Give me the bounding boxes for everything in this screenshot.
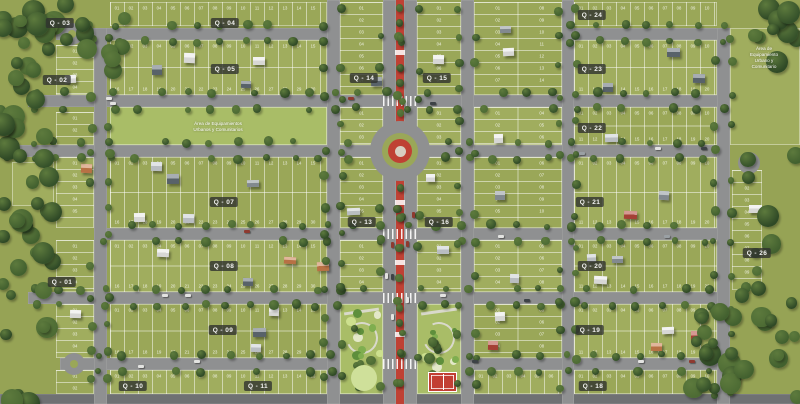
house [433,55,445,64]
lot-number: 05 [635,6,640,11]
lot-number: 18 [143,87,148,92]
lot-number: 01 [359,161,364,166]
lot-number: 02 [437,123,442,128]
lot-number: 06 [649,111,654,116]
lot-number: 15 [311,244,316,249]
tree [424,89,431,96]
tree [570,297,579,306]
lot-number: 05 [171,308,176,313]
lot-number: 08 [213,374,218,379]
lot-number: 07 [663,6,668,11]
block-label: Q - 05 [211,64,239,74]
tree [396,4,403,11]
tree [415,96,422,103]
lot-number: 03 [143,161,148,166]
tree [264,136,273,145]
tree [77,138,85,146]
lot-number: 07 [663,161,668,166]
tree [0,230,10,243]
tree [691,336,702,347]
tree [77,39,97,59]
tree [95,368,101,374]
lot-number: 04 [621,374,626,379]
house [167,174,179,184]
tree [279,236,288,245]
tree [453,330,461,338]
block-label: Q - 10 [119,381,147,391]
tree [42,42,56,56]
house [603,83,613,92]
tree [618,138,625,145]
lot-number: 02 [73,386,78,391]
tree [253,104,261,112]
lot-number: 06 [185,244,190,249]
tree [633,367,642,376]
tree [590,155,597,162]
house [247,180,259,188]
tree [376,382,385,391]
court-centerline [443,374,444,390]
lot-number: 23 [213,220,218,225]
lot-number: 10 [241,6,246,11]
lot-number: 25 [241,350,246,355]
house [667,48,680,57]
lot-number: 12 [269,161,274,166]
house [253,327,266,336]
tree [88,322,97,331]
tree [443,286,449,292]
block-label: Q - 02 [43,75,71,85]
car [406,241,409,247]
lot-number: 09 [539,18,544,23]
tree [18,37,30,49]
car [524,299,530,302]
house [605,134,618,143]
tree [789,331,800,342]
lot-number: 15 [311,6,316,11]
lot-number: 02 [593,244,598,249]
lot-number: 01 [495,244,500,249]
lot-number: 06 [185,161,190,166]
tree [567,222,577,232]
lot-number: 11 [579,350,583,355]
house [81,163,92,173]
tree [454,240,462,248]
lot-number: 08 [677,6,682,11]
tree [536,352,544,360]
lot-number: 14 [621,284,626,289]
lot-number: 03 [359,135,364,140]
car [385,273,388,279]
tree [787,147,800,164]
tree [428,337,438,347]
tree [38,321,50,333]
lot-number: 27 [269,220,274,225]
lot-number: 15 [311,44,316,49]
tree [471,329,480,338]
tree [573,245,579,251]
tree [87,295,94,302]
lot-number: 08 [677,244,682,249]
lot-number: 04 [359,197,364,202]
block-label: Q - 20 [578,261,606,271]
lot-number: 02 [593,44,598,49]
tree [698,140,704,146]
lot-number: 24 [227,87,232,92]
lot-number: 06 [539,256,544,261]
tree [13,149,27,163]
lot-number: 09 [227,244,232,249]
car [162,294,168,297]
tree [338,149,345,156]
tree [572,270,578,276]
tree [170,351,179,360]
lot-number: 20 [171,87,176,92]
tree [454,183,460,189]
tree [130,303,136,309]
tree [457,221,466,230]
tree [10,259,27,276]
lot-number: 04 [73,197,78,202]
lot-number: 11 [579,87,583,92]
tree [337,4,346,13]
house [70,309,81,317]
tree [338,372,346,380]
lot-number: 17 [129,350,134,355]
tree [175,223,182,230]
lot-number: 05 [171,244,176,249]
car [106,97,112,100]
lot-number: 12 [539,54,544,59]
lot-number: 05 [635,244,640,249]
house [151,162,162,171]
lot-number: 12 [269,244,274,249]
tree [232,105,241,114]
lot-number: 03 [143,244,148,249]
lot-number: 14 [297,6,302,11]
tree [699,155,707,163]
lot-number: 01 [437,161,442,166]
tree [26,62,42,78]
tree [414,354,422,362]
lot-number: 11 [579,220,583,225]
lot-number: 20 [705,137,710,142]
house [693,74,705,84]
tree [202,222,210,230]
median-crossing [395,50,405,55]
tree [104,51,121,68]
lot-number: 08 [677,308,682,313]
tree [322,147,330,155]
tree [86,178,94,186]
lot-number: 08 [539,6,544,11]
tree [193,39,201,47]
tree [299,223,306,230]
car [391,242,394,248]
lot-number: 10 [241,374,246,379]
lot-number: 08 [539,185,544,190]
tree [721,22,728,29]
block-label: Q - 26 [743,248,771,258]
tree [441,152,450,161]
tree [740,152,756,168]
lot-number: 10 [241,244,246,249]
tree [396,304,403,311]
car [185,294,191,297]
tree [595,222,604,231]
lot-number: 06 [185,44,190,49]
tree [182,303,189,310]
tree [554,7,563,16]
tree [397,109,404,116]
lot-number: 09 [745,270,750,275]
tree [727,239,734,246]
tree [169,38,177,46]
lot-number: 14 [621,350,626,355]
lot-number: 21 [185,350,190,355]
tree [233,155,242,164]
lot-number: 03 [607,44,612,49]
tree [321,314,329,322]
lot-number: 09 [227,374,232,379]
tree [710,122,718,130]
lot-number: 23 [213,284,218,289]
lot-number: 05 [359,54,364,59]
house [488,341,498,350]
house [251,344,261,352]
house [651,343,662,351]
tree [666,38,673,45]
lot-number: 05 [635,44,640,49]
lot-number: 17 [663,220,668,225]
lot-number: 01 [579,44,584,49]
tree [397,64,404,71]
tree [556,120,563,127]
lot-number: 26 [255,220,260,225]
lot-number: 05 [635,111,640,116]
car [412,212,415,218]
house [152,65,162,75]
tree [514,285,521,292]
lot-number: 02 [73,320,78,325]
tree [643,90,650,97]
lot-number: 29 [297,350,302,355]
tree [643,222,650,229]
tree [305,88,314,97]
lot-number: 12 [269,6,274,11]
lot-number: 09 [227,6,232,11]
lot-number: 09 [539,197,544,202]
lot-number: 05 [539,123,544,128]
tree [397,184,404,191]
lot-number: 05 [635,161,640,166]
house [624,211,637,219]
lot-number: 10 [241,44,246,49]
lot-number: 03 [437,185,442,190]
tree [103,285,109,291]
lot-number: 19 [157,220,162,225]
lot-number: 03 [437,135,442,140]
tree [568,138,575,145]
masterplan-map: 0102030401020102030405010203040102030401… [0,0,800,404]
tree [395,244,402,251]
lot-number: 01 [115,244,120,249]
car [110,102,116,105]
tree [320,373,328,381]
lot-number: 02 [593,111,598,116]
tree [726,35,734,43]
tree [86,92,95,101]
tree [175,237,182,244]
tree [382,87,392,97]
car [498,235,504,238]
tree [111,105,120,114]
lot-number: 04 [437,42,442,47]
house [594,276,607,285]
area-label: Área de Equipamiento Urbano y Comunitari… [746,46,782,70]
lot-number: 02 [437,256,442,261]
tree [397,349,404,356]
tree [328,367,337,376]
lot-number: 03 [607,6,612,11]
lot-number: 05 [171,161,176,166]
tree [60,33,73,46]
crosswalk [383,359,417,369]
lot-number: 04 [539,111,544,116]
tree [572,355,580,363]
tree [418,285,424,291]
tree [711,145,720,154]
lot-number: 04 [157,6,162,11]
tree [751,281,766,296]
tree [86,262,94,270]
lot-number: 06 [495,66,500,71]
tree [545,154,552,161]
tree [486,301,495,310]
lot-number: 08 [213,308,218,313]
lot-number: 10 [705,6,710,11]
lot-number: 26 [255,284,260,289]
lot-number: 03 [359,185,364,190]
block [474,157,562,228]
tree [557,285,564,292]
tree [6,290,16,300]
block-label: Q - 21 [576,197,604,207]
tree [9,213,25,229]
block-label: Q - 04 [211,18,239,28]
lot-number: 19 [691,220,696,225]
block-label: Q - 22 [578,123,606,133]
lot-number: 08 [213,244,218,249]
block-label: Q - 08 [210,261,238,271]
lot-number: 06 [549,374,554,379]
tree [710,179,717,186]
tree [59,106,66,113]
tree [366,356,375,365]
lot-number: 13 [283,308,288,313]
lot-number: 28 [283,284,288,289]
lot-number: 11 [255,6,259,11]
lot-number: 17 [129,87,134,92]
tree [216,38,222,44]
road [28,95,730,107]
lot-number: 15 [635,87,640,92]
crosswalk [383,229,417,239]
tree [565,367,572,374]
lot-number: 05 [495,54,500,59]
lot-number: 16 [115,220,120,225]
lot-number: 01 [359,6,364,11]
tree [617,238,624,245]
tree [325,221,331,227]
tree [279,222,287,230]
lot-number: 18 [677,284,682,289]
lot-number: 04 [437,197,442,202]
tree [228,220,236,228]
tree [162,138,169,145]
tree [773,350,785,362]
tree [566,21,575,30]
tree [253,368,260,375]
tree [33,300,41,308]
lot-number: 15 [635,220,640,225]
lot-number: 09 [691,161,696,166]
lot-number: 12 [269,44,274,49]
house [284,257,297,265]
tree [786,297,797,308]
block [574,157,717,228]
tree [202,300,210,308]
lot-number: 03 [73,268,78,273]
lot-number: 06 [359,66,364,71]
lot-number: 06 [437,66,442,71]
lot-number: 22 [199,87,204,92]
tree [514,237,522,245]
lot-number: 02 [73,256,78,261]
tree [545,140,553,148]
house [495,191,505,200]
house [500,26,511,33]
lot-number: 01 [437,6,442,11]
lot-number: 29 [297,87,302,92]
road [28,292,730,304]
lot-number: 11 [255,244,259,249]
tree [263,154,270,161]
tree [152,285,161,294]
lot-number: 19 [691,284,696,289]
tree [149,221,156,228]
lot-number: 09 [691,244,696,249]
block-label: Q - 14 [350,73,378,83]
tree [399,330,405,336]
lot-number: 13 [607,350,612,355]
house [503,48,514,56]
tree [264,37,271,44]
lot-number: 11 [579,137,583,142]
lot-number: 02 [73,128,78,133]
tree [775,330,790,345]
tree [14,15,27,28]
lot-number: 06 [539,135,544,140]
tree [669,103,678,112]
tree [515,139,522,146]
tree [60,87,69,96]
house [662,327,675,335]
lot-number: 03 [607,244,612,249]
lot-number: 02 [495,256,500,261]
tree [556,326,564,334]
lot-number: 11 [540,42,544,47]
